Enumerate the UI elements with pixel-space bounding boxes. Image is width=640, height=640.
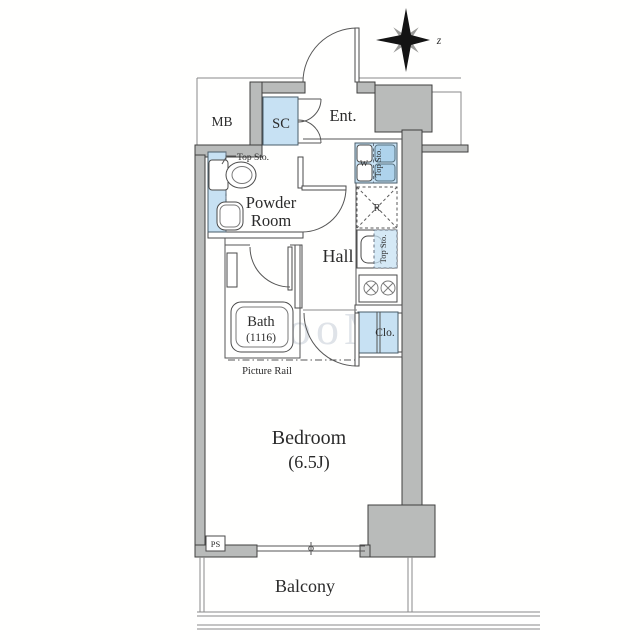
powder-door-arc xyxy=(302,188,346,232)
closet-label: Clo. xyxy=(375,327,395,339)
refrigerator-label: R xyxy=(373,203,380,214)
bath-door-leaf xyxy=(288,247,292,290)
bath-door-arc xyxy=(250,247,290,287)
bedroom-window xyxy=(257,542,365,555)
washbasin xyxy=(217,202,243,230)
balcony xyxy=(197,557,540,629)
balcony-edge-upper xyxy=(197,612,540,616)
left-wall xyxy=(195,155,205,557)
top-wall-right xyxy=(357,82,375,93)
front-door-leaf xyxy=(355,28,359,82)
pipe-space-label: PS xyxy=(211,539,221,549)
top-right-pillar xyxy=(375,85,432,132)
bath-counter xyxy=(227,253,237,287)
compass-north-label: z xyxy=(436,35,442,47)
bath-size-label: (1116) xyxy=(246,332,276,344)
washer-label: W xyxy=(360,158,368,168)
shoe-closet-door-arc-top xyxy=(298,99,321,122)
compass-major-star xyxy=(376,8,430,72)
compass: z xyxy=(376,8,442,72)
bath-label: Bath xyxy=(247,314,275,330)
powder-room-label-1: Powder xyxy=(246,193,297,212)
washer-top-storage-label: Top Sto. xyxy=(373,149,383,178)
floor-plan-drawing: ooM xyxy=(0,0,640,640)
powder-door-leaf xyxy=(302,186,346,190)
bedroom-label: Bedroom xyxy=(272,427,347,449)
hall-label: Hall xyxy=(323,246,354,266)
balcony-rail-right xyxy=(408,557,412,612)
shoe-closet-door-arc-bottom xyxy=(298,120,321,143)
balcony-edge-lower xyxy=(197,625,540,629)
balcony-rail-left xyxy=(200,557,204,612)
powder-room-fixtures xyxy=(208,152,256,232)
floor-plan: ooM xyxy=(0,0,640,640)
right-wall xyxy=(402,130,422,507)
powder-bottom-wall xyxy=(208,232,303,238)
bedroom-details xyxy=(206,360,356,551)
front-door-arc xyxy=(303,28,357,82)
bedroom-size-label: (6.5J) xyxy=(288,452,330,473)
bath-door-opening xyxy=(250,241,290,250)
bedroom-door-leaf xyxy=(355,313,359,366)
bath-right-wall xyxy=(295,245,302,308)
sc-label: SC xyxy=(272,116,290,132)
entrance-label: Ent. xyxy=(329,106,356,125)
toilet-tank xyxy=(209,160,228,190)
toilet-top-storage-label: Top Sto. xyxy=(237,153,269,163)
powder-room-label-2: Room xyxy=(251,211,292,230)
picture-rail-label: Picture Rail xyxy=(242,366,292,377)
bottom-right-pillar xyxy=(368,505,435,557)
balcony-label: Balcony xyxy=(275,576,335,596)
mb-label: MB xyxy=(211,114,232,129)
powder-hall-wall xyxy=(298,157,303,188)
kitchen-top-storage-label: Top Sto. xyxy=(378,235,388,264)
bottom-wall-left xyxy=(195,545,257,557)
party-wall-stub xyxy=(422,145,468,152)
shoe-closet-door-leaves xyxy=(298,99,321,143)
